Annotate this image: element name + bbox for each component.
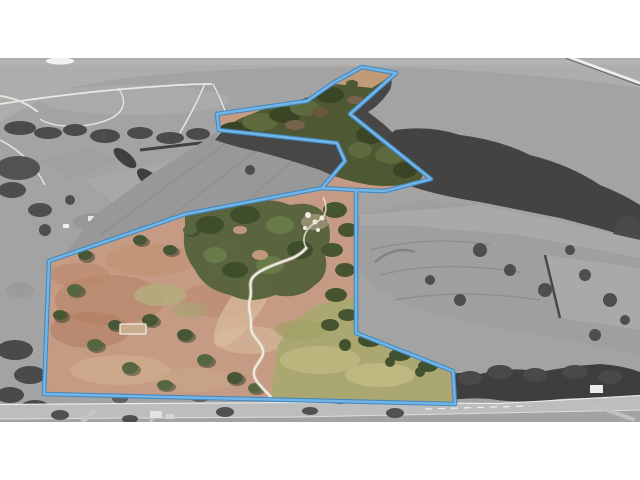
boat-wake <box>46 58 74 65</box>
letterbox-top <box>0 0 640 58</box>
headland-ridge <box>40 85 230 115</box>
aerial-photo <box>0 0 640 480</box>
corral <box>120 324 146 334</box>
screenshot-root <box>0 0 640 480</box>
water-streak <box>0 60 640 65</box>
letterbox-bottom <box>0 422 640 480</box>
